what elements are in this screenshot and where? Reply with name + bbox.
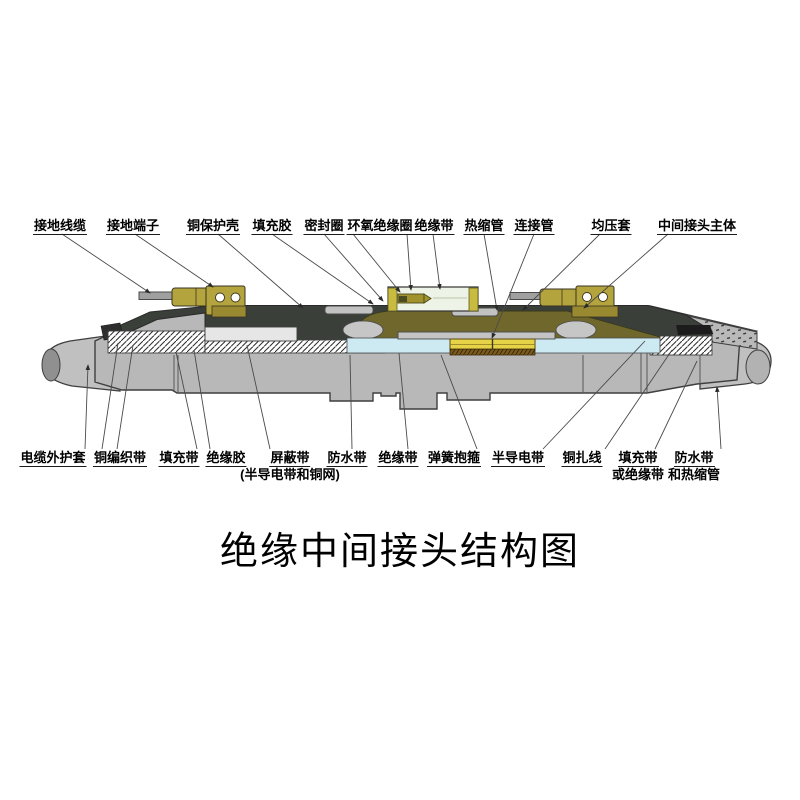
diagram-page: 接地线缆 接地端子 铜保护壳 填充胶 密封圈 环氧绝缘圈 绝缘带 热缩管 连接管… xyxy=(0,0,800,800)
spring-clamp-part xyxy=(450,349,535,355)
shield-band-right-clip xyxy=(676,325,713,335)
label-connecting-tube: 连接管 xyxy=(513,218,554,235)
leader-epoxy-ring-a xyxy=(353,234,400,292)
diagram-title: 绝缘中间接头结构图 xyxy=(220,520,580,575)
label-sealing-ring: 密封圈 xyxy=(303,218,344,235)
label-shielding-tape: 屏蔽带(半导电带和铜网) xyxy=(240,450,340,483)
epoxy-ring-assembly xyxy=(388,287,478,311)
leader-joint-main-body xyxy=(584,234,668,308)
grounding-rod-left xyxy=(139,292,175,300)
label-grounding-cable: 接地线缆 xyxy=(33,218,87,235)
label-copper-protective-shell: 铜保护壳 xyxy=(186,218,240,235)
terminal-hole xyxy=(583,293,592,302)
label-cable-outer-sheath: 电缆外护套 xyxy=(19,450,86,467)
conductor-bar xyxy=(398,332,555,339)
label-filling-tape: 填充带 xyxy=(158,450,199,467)
leader-filling-glue xyxy=(272,234,373,304)
label-joint-main-body: 中间接头主体 xyxy=(657,218,737,235)
copper-braid-hatch-left xyxy=(108,331,205,353)
leader-grounding-cable xyxy=(62,234,150,293)
label-copper-binding-wire: 铜扎线 xyxy=(561,450,602,467)
cable-joint-diagram xyxy=(0,0,800,800)
stress-relief-notch-left xyxy=(343,321,383,339)
shield-tab-left xyxy=(325,306,373,314)
label-waterproof-tape: 防水带 xyxy=(326,450,367,467)
leader-epoxy-ring-b xyxy=(407,234,411,290)
label-insulation-tape-2: 绝缘带 xyxy=(377,450,418,467)
label-filling-glue: 填充胶 xyxy=(251,218,292,235)
left-cable-core xyxy=(42,349,60,381)
leader-waterproof-heatshrink xyxy=(717,387,721,449)
label-filling-or-insulation-tape: 填充带或绝缘带 xyxy=(612,450,664,483)
terminal-hole xyxy=(231,293,240,302)
right-cable-core xyxy=(746,350,770,384)
label-heat-shrink-tube: 热缩管 xyxy=(463,218,504,235)
leader-grounding-terminal xyxy=(135,234,213,287)
label-spring-clamp: 弹簧抱箍 xyxy=(427,450,481,467)
label-equalizing-sleeve: 均压套 xyxy=(590,218,631,235)
stress-relief-notch-right xyxy=(556,321,596,339)
label-grounding-terminal: 接地端子 xyxy=(106,218,160,235)
label-waterproof-and-heatshrink: 防水带和热缩管 xyxy=(668,450,720,483)
epoxy-ring-left-seal xyxy=(388,288,397,311)
connecting-tube-part xyxy=(450,339,535,350)
terminal-hole xyxy=(216,293,225,302)
braid-notch-piece xyxy=(205,327,297,341)
label-copper-braid-tape: 铜编织带 xyxy=(93,450,147,467)
label-semi-conductive-tape: 半导电带 xyxy=(491,450,545,467)
leader-insulation-tape xyxy=(433,234,440,289)
label-shielding-tape-note: (半导电带和铜网) xyxy=(240,467,340,482)
epoxy-ring-right-seal xyxy=(469,288,478,311)
leader-heat-shrink-tube xyxy=(484,234,497,310)
label-insulation-tape: 绝缘带 xyxy=(413,218,454,235)
label-epoxy-insulation-ring: 环氧绝缘圈 xyxy=(346,218,413,235)
